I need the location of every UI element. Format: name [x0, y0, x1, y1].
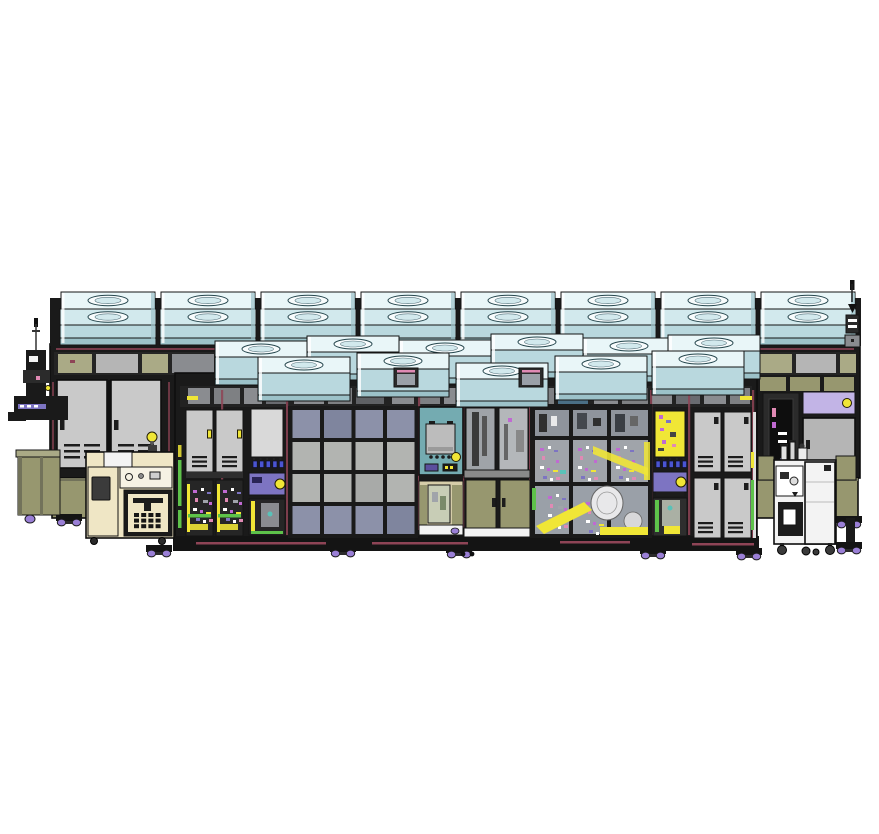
floor-anchor-dot	[461, 552, 466, 557]
ffu-unit	[160, 292, 256, 345]
front-enclosure	[146, 373, 762, 560]
yellow-indicator-lamp	[843, 399, 852, 408]
yellow-indicator-lamp	[147, 432, 157, 442]
roof-monitor-left	[394, 368, 418, 387]
ffu-unit	[258, 357, 350, 401]
lavender-panel	[803, 392, 855, 414]
ffu-unit	[60, 292, 156, 345]
machine-foot	[146, 545, 172, 557]
locker-door	[694, 478, 721, 538]
control-panel-column	[419, 407, 463, 535]
left-fence	[16, 450, 60, 523]
yellow-indicator-lamp	[676, 477, 686, 487]
machine-foot	[330, 545, 356, 557]
locker-door	[694, 412, 721, 472]
locker-door	[724, 412, 751, 472]
yellow-indicator-lamp	[452, 453, 461, 462]
yellow-indicator-lamp	[275, 479, 285, 489]
ffu-unit	[555, 356, 647, 400]
ffu-unit	[760, 292, 856, 345]
left-service-cart	[86, 441, 174, 545]
ffu-unit	[652, 351, 744, 395]
cad-render-canvas	[0, 0, 879, 834]
process-machinery-windows	[530, 404, 652, 538]
right-status-column	[653, 411, 687, 536]
machine-foot	[446, 546, 472, 558]
cart-window	[92, 477, 110, 500]
roof-monitor-right	[519, 368, 543, 387]
floor-anchor-dot	[470, 552, 475, 557]
cart-keypad	[124, 490, 172, 536]
machine-foot	[640, 547, 666, 559]
machine-foot	[56, 514, 82, 526]
machine-foot	[736, 548, 762, 560]
process-chamber-sphere	[591, 486, 623, 520]
machine-foot	[836, 542, 862, 554]
center-glass-grid	[288, 406, 418, 538]
locker-door	[724, 478, 751, 538]
